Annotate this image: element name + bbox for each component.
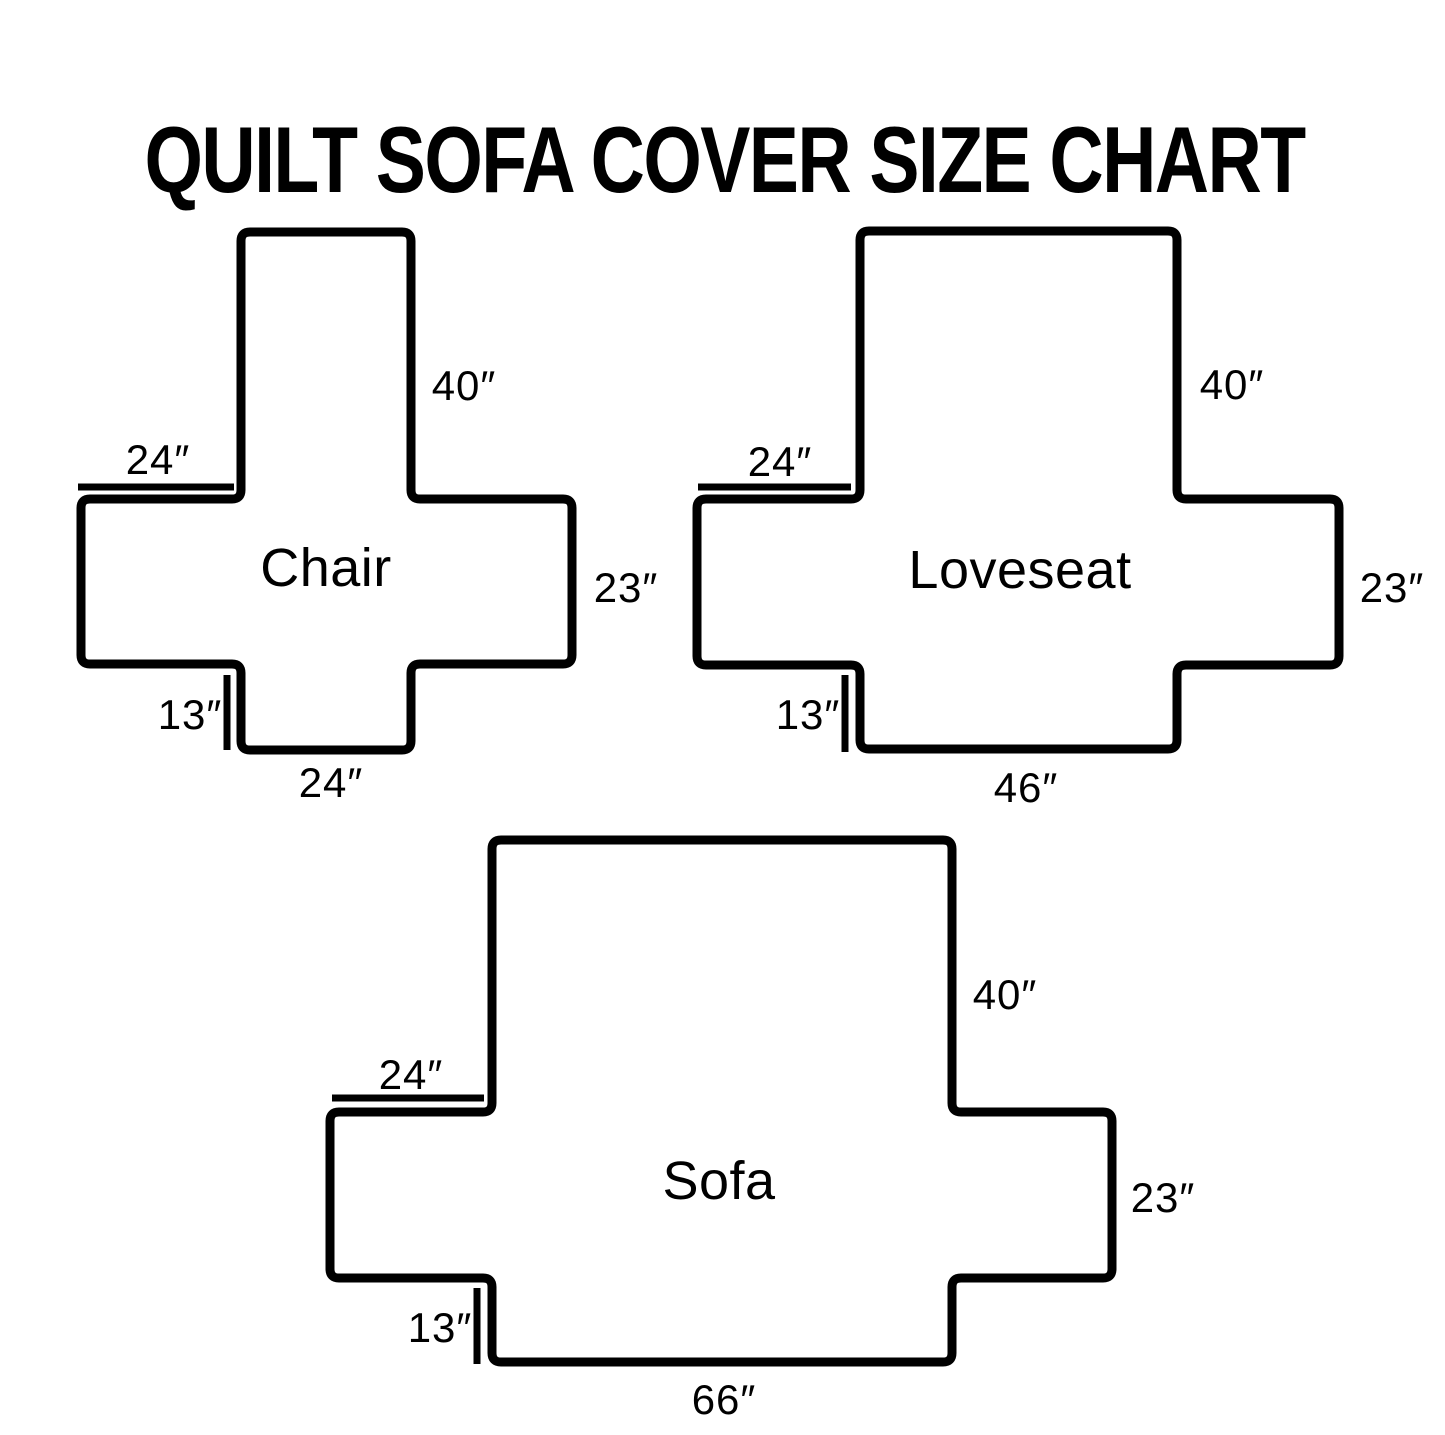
chair-bottom-width-label: 24″ xyxy=(299,762,364,804)
sofa-back-height-label: 40″ xyxy=(973,974,1038,1016)
sofa-top-arm-width-label: 24″ xyxy=(379,1054,444,1096)
loveseat-flap-height-label: 13″ xyxy=(776,694,841,736)
chair-flap-height-label: 13″ xyxy=(158,694,223,736)
loveseat-top-arm-width-label: 24″ xyxy=(748,441,813,483)
chair-top-arm-width-label: 24″ xyxy=(126,439,191,481)
sofa-bottom-width-label: 66″ xyxy=(692,1379,757,1421)
chair-name-label: Chair xyxy=(260,541,392,595)
chair-back-height-label: 40″ xyxy=(432,365,497,407)
sofa-flap-height-label: 13″ xyxy=(408,1307,473,1349)
sofa-name-label: Sofa xyxy=(662,1154,775,1208)
chair-cover-outline xyxy=(81,232,572,750)
loveseat-bottom-width-label: 46″ xyxy=(994,767,1059,809)
loveseat-name-label: Loveseat xyxy=(908,543,1131,597)
size-chart-canvas: QUILT SOFA COVER SIZE CHART Chair40″24″2… xyxy=(0,0,1445,1435)
loveseat-side-height-label: 23″ xyxy=(1360,567,1425,609)
chair-side-height-label: 23″ xyxy=(594,567,659,609)
loveseat-back-height-label: 40″ xyxy=(1200,364,1265,406)
sofa-side-height-label: 23″ xyxy=(1131,1177,1196,1219)
